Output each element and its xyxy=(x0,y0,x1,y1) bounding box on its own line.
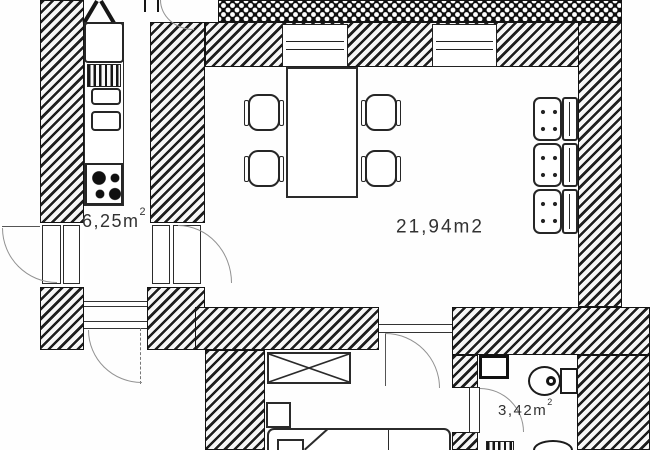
chair-arm xyxy=(244,156,249,182)
chair-icon xyxy=(365,150,397,187)
sink-basin-lower xyxy=(91,111,121,131)
bed-divider-line xyxy=(388,430,389,450)
bathroom-area-value: 3,42m xyxy=(498,402,547,419)
chair-arm xyxy=(361,156,366,182)
door-left-leaf xyxy=(63,225,80,284)
nightstand-icon xyxy=(266,402,291,428)
wall-top xyxy=(205,22,622,67)
entrance-jamb-tick xyxy=(157,0,159,12)
living-area-label: 21,94m2 xyxy=(396,216,484,238)
stove-4-burner-icon xyxy=(85,163,123,205)
hall-door-threshold-upper xyxy=(84,301,147,307)
washbasin-icon xyxy=(479,355,509,379)
wall-bedroom-left xyxy=(205,350,265,450)
oval-sink-icon xyxy=(533,440,573,450)
sofa-seat xyxy=(533,97,562,141)
bathroom-area-exp: 2 xyxy=(547,397,552,407)
toilet-flush-dot xyxy=(546,376,556,386)
chair-arm xyxy=(279,156,284,182)
bathroom-area-label: 3,42m2 xyxy=(498,401,552,419)
door-kitchen-frame xyxy=(152,225,170,284)
bathroom-door-leaf xyxy=(469,387,480,433)
floor-plan: 6,25m2 21,94m2 3,42m2 xyxy=(0,0,650,450)
toilet-tank xyxy=(560,368,578,394)
window-living-left xyxy=(282,24,348,67)
window-living-right xyxy=(432,24,497,67)
wardrobe-cross xyxy=(269,354,349,382)
dining-table xyxy=(286,67,358,198)
wall-bathroom-left-lower xyxy=(452,432,478,450)
vent-grille-icon xyxy=(87,64,121,87)
wall-left-upper xyxy=(40,0,84,223)
fridge-icon xyxy=(84,22,124,63)
wall-bathroom-left-upper xyxy=(452,355,478,388)
sofa-backrest xyxy=(562,97,578,141)
door-left-swing-arc xyxy=(2,228,57,283)
wall-bathroom-right xyxy=(577,355,650,450)
sofa-seat xyxy=(533,143,562,187)
chair-arm xyxy=(244,100,249,126)
sofa-backrest xyxy=(562,143,578,187)
sink-basin-upper xyxy=(91,88,121,105)
wall-top-honeycomb xyxy=(218,0,622,22)
entrance-hatch-icon xyxy=(82,0,116,23)
chair-arm xyxy=(396,100,401,126)
kitchen-area-value: 6,25m xyxy=(82,211,140,231)
door-kitchen-swing-arc xyxy=(178,225,232,283)
bed-pillow xyxy=(277,439,304,450)
wall-bathroom-top xyxy=(452,307,650,355)
toilet-icon xyxy=(528,366,561,396)
entrance-jamb-tick xyxy=(144,0,146,12)
chair-arm xyxy=(361,100,366,126)
wall-kitchen-divider-upper xyxy=(150,22,205,223)
chair-icon xyxy=(248,150,280,187)
sofa-backrest xyxy=(562,189,578,234)
bedroom-door-swing-arc xyxy=(385,333,440,388)
shower-grille-icon xyxy=(486,441,514,450)
chair-arm xyxy=(279,100,284,126)
bedroom-door-threshold xyxy=(379,324,452,333)
hall-door-threshold-lower xyxy=(84,321,147,329)
sofa-seat xyxy=(533,189,562,234)
chair-icon xyxy=(248,94,280,131)
wardrobe-icon xyxy=(267,352,351,384)
wall-living-bottom xyxy=(195,307,379,350)
wall-left-lower xyxy=(40,287,84,350)
chair-icon xyxy=(365,94,397,131)
kitchen-area-label: 6,25m2 xyxy=(82,211,146,232)
door-left-tick xyxy=(2,226,40,227)
window-pane xyxy=(436,41,493,50)
wall-right xyxy=(578,22,622,307)
hall-door-swing-arc xyxy=(88,330,142,383)
kitchen-area-exp: 2 xyxy=(140,206,146,218)
chair-arm xyxy=(396,156,401,182)
window-pane xyxy=(286,41,344,50)
living-area-value: 21,94m2 xyxy=(396,216,484,237)
